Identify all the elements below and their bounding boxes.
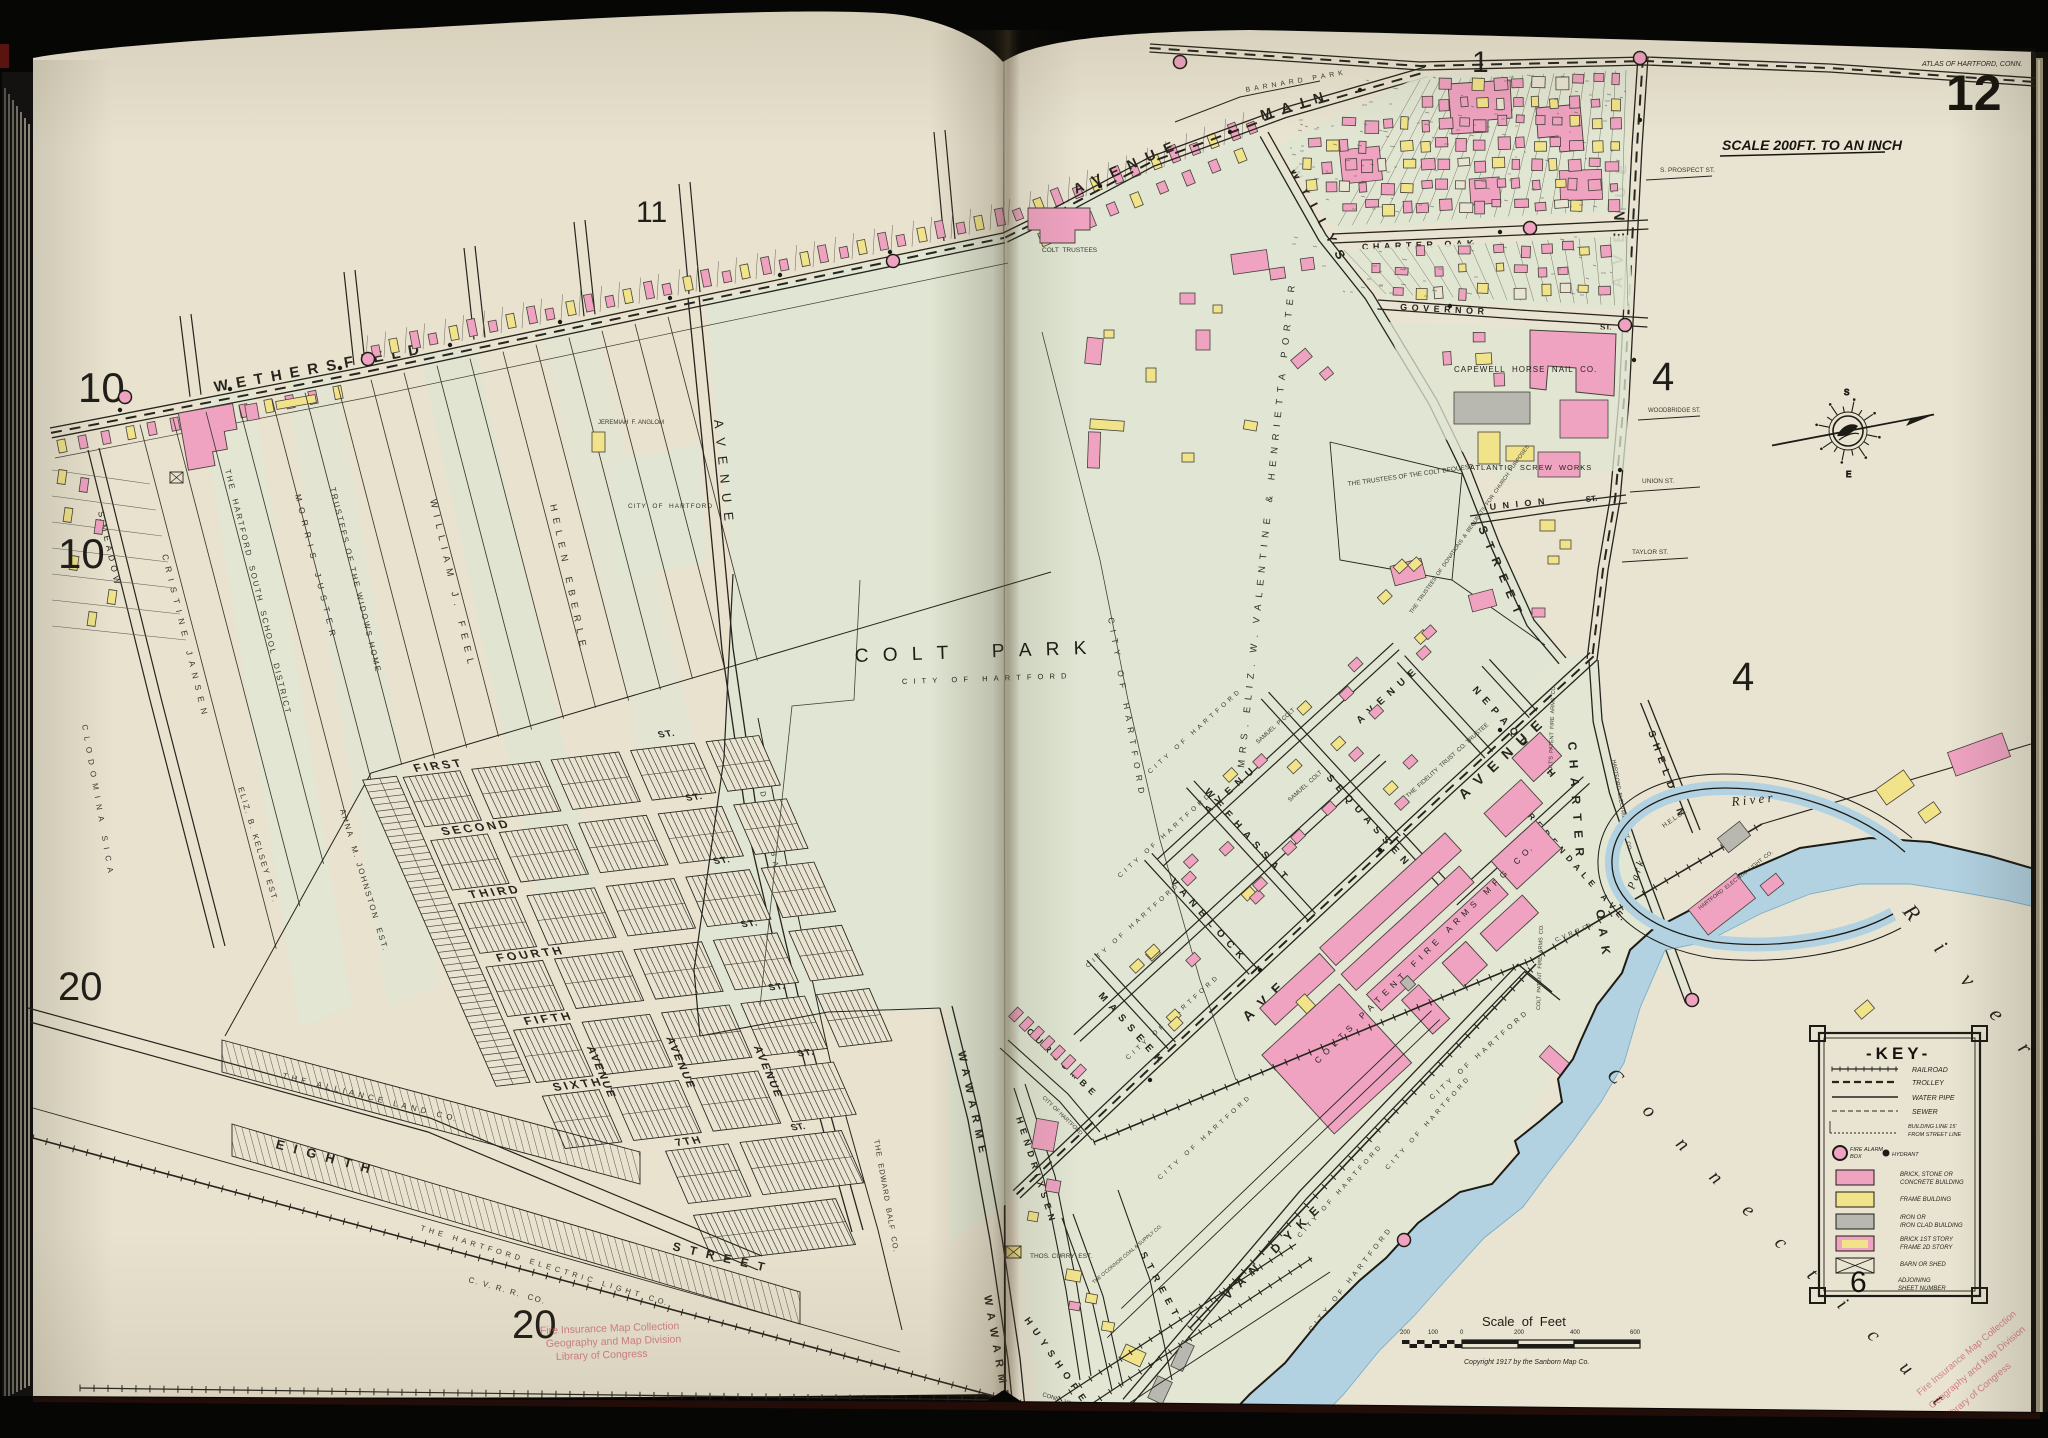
svg-text:IRON OR: IRON OR <box>1900 1215 1926 1221</box>
svg-text:CITY OF HARTFORD: CITY OF HARTFORD <box>628 503 713 510</box>
svg-text:ST.: ST. <box>1585 494 1597 504</box>
svg-text:WATER PIPE: WATER PIPE <box>1912 1095 1955 1102</box>
svg-text:CAPEWELL HORSE NAIL CO.: CAPEWELL HORSE NAIL CO. <box>1454 365 1597 374</box>
svg-text:UNION ST.: UNION ST. <box>1642 478 1674 485</box>
svg-text:11: 11 <box>636 196 667 229</box>
svg-text:BRICK, STONE OR: BRICK, STONE OR <box>1900 1172 1954 1178</box>
svg-text:100: 100 <box>1428 1330 1439 1336</box>
svg-text:WOODBRIDGE ST.: WOODBRIDGE ST. <box>1648 408 1701 414</box>
svg-text:FRAME BUILDING: FRAME BUILDING <box>1900 1197 1951 1203</box>
svg-text:400: 400 <box>1570 1330 1581 1336</box>
svg-text:SEWER: SEWER <box>1912 1109 1938 1116</box>
svg-text:200: 200 <box>1400 1330 1411 1336</box>
svg-text:BOX: BOX <box>1850 1154 1862 1160</box>
svg-text:HYDRANT: HYDRANT <box>1892 1152 1919 1158</box>
svg-text:-KEY-: -KEY- <box>1866 1044 1931 1063</box>
svg-text:E: E <box>1846 470 1851 479</box>
svg-text:ATLANTIC SCREW WORKS: ATLANTIC SCREW WORKS <box>1470 463 1592 472</box>
svg-text:JEREMIAH F. ANGLOM: JEREMIAH F. ANGLOM <box>598 420 664 426</box>
svg-text:200: 200 <box>1514 1330 1525 1336</box>
svg-text:ADJOINING: ADJOINING <box>1897 1278 1931 1284</box>
svg-text:BUILDING LINE 15': BUILDING LINE 15' <box>1908 1124 1957 1130</box>
svg-text:SHEET NUMBER: SHEET NUMBER <box>1898 1286 1946 1292</box>
svg-text:RAILROAD: RAILROAD <box>1912 1067 1948 1074</box>
svg-text:4: 4 <box>1732 655 1754 699</box>
svg-text:FRAME 2D STORY: FRAME 2D STORY <box>1900 1245 1953 1251</box>
svg-text:BRICK 1ST STORY: BRICK 1ST STORY <box>1900 1237 1954 1243</box>
svg-text:FIRE ALARM: FIRE ALARM <box>1850 1147 1883 1153</box>
svg-text:TAYLOR ST.: TAYLOR ST. <box>1632 549 1668 556</box>
svg-text:S: S <box>1844 388 1849 397</box>
svg-text:Scale of Feet: Scale of Feet <box>1482 1314 1566 1329</box>
svg-text:TROLLEY: TROLLEY <box>1912 1080 1945 1087</box>
svg-text:BARN OR SHED: BARN OR SHED <box>1900 1262 1946 1268</box>
svg-text:6: 6 <box>1850 1266 1867 1299</box>
svg-text:600: 600 <box>1630 1330 1641 1336</box>
svg-text:4: 4 <box>1652 355 1674 399</box>
svg-text:Copyright 1917 by the Sanborn: Copyright 1917 by the Sanborn Map Co. <box>1464 1359 1589 1366</box>
svg-text:S. PROSPECT ST.: S. PROSPECT ST. <box>1660 167 1715 174</box>
